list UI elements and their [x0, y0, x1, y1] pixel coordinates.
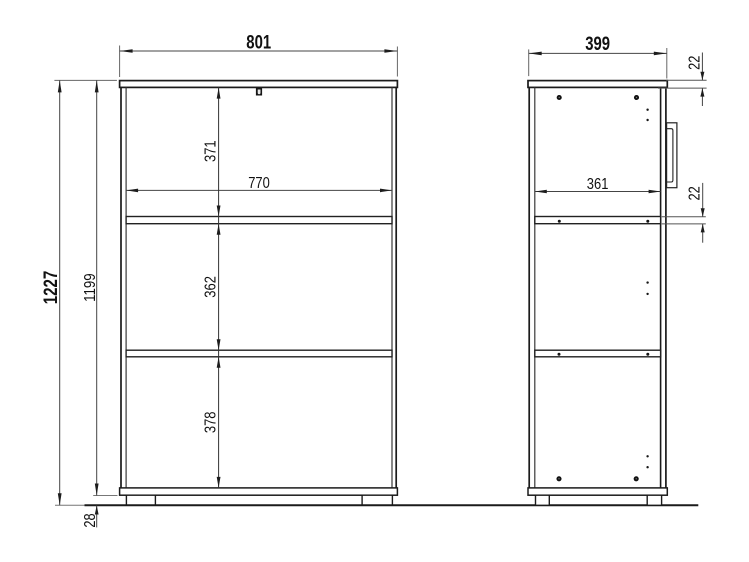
svg-text:1227: 1227	[41, 271, 62, 305]
svg-text:361: 361	[587, 176, 609, 193]
svg-text:801: 801	[246, 32, 271, 53]
svg-text:28: 28	[82, 513, 99, 527]
svg-text:22: 22	[686, 186, 703, 200]
svg-text:1199: 1199	[82, 273, 99, 302]
svg-text:770: 770	[248, 175, 270, 192]
svg-text:378: 378	[203, 412, 220, 434]
svg-text:22: 22	[686, 56, 703, 70]
svg-text:362: 362	[203, 276, 220, 298]
svg-text:399: 399	[585, 34, 610, 55]
svg-text:371: 371	[203, 140, 220, 162]
